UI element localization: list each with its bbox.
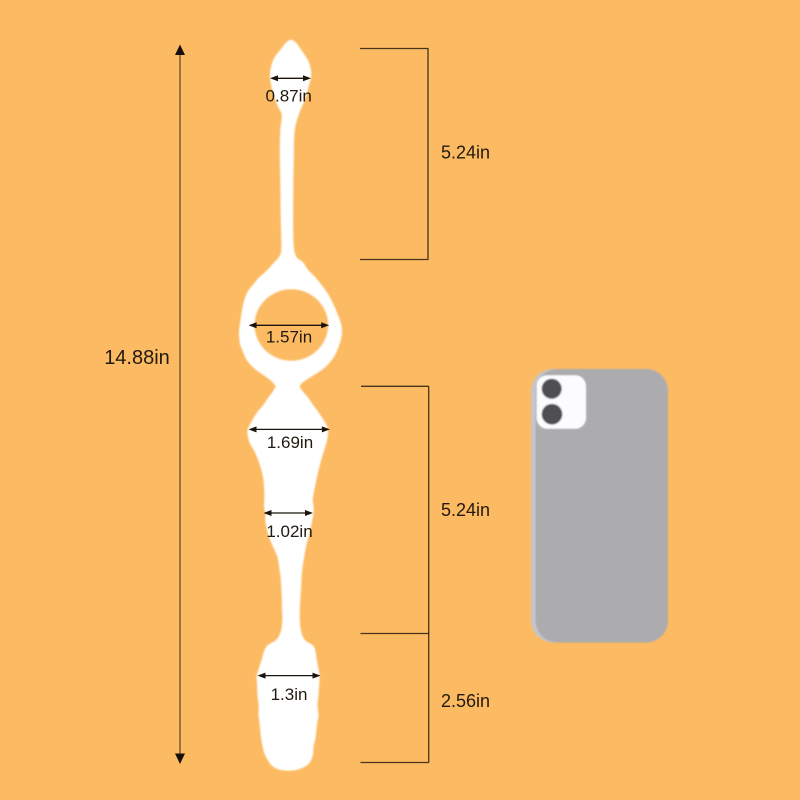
svg-text:1.02in: 1.02in: [266, 522, 312, 541]
svg-text:1.57in: 1.57in: [266, 328, 312, 347]
svg-text:2.56in: 2.56in: [441, 691, 490, 711]
svg-text:0.87in: 0.87in: [266, 87, 312, 106]
svg-text:1.3in: 1.3in: [271, 685, 308, 704]
svg-text:5.24in: 5.24in: [441, 500, 490, 520]
svg-text:1.69in: 1.69in: [267, 433, 313, 452]
svg-text:5.24in: 5.24in: [441, 143, 490, 163]
svg-text:14.88in: 14.88in: [104, 347, 170, 369]
